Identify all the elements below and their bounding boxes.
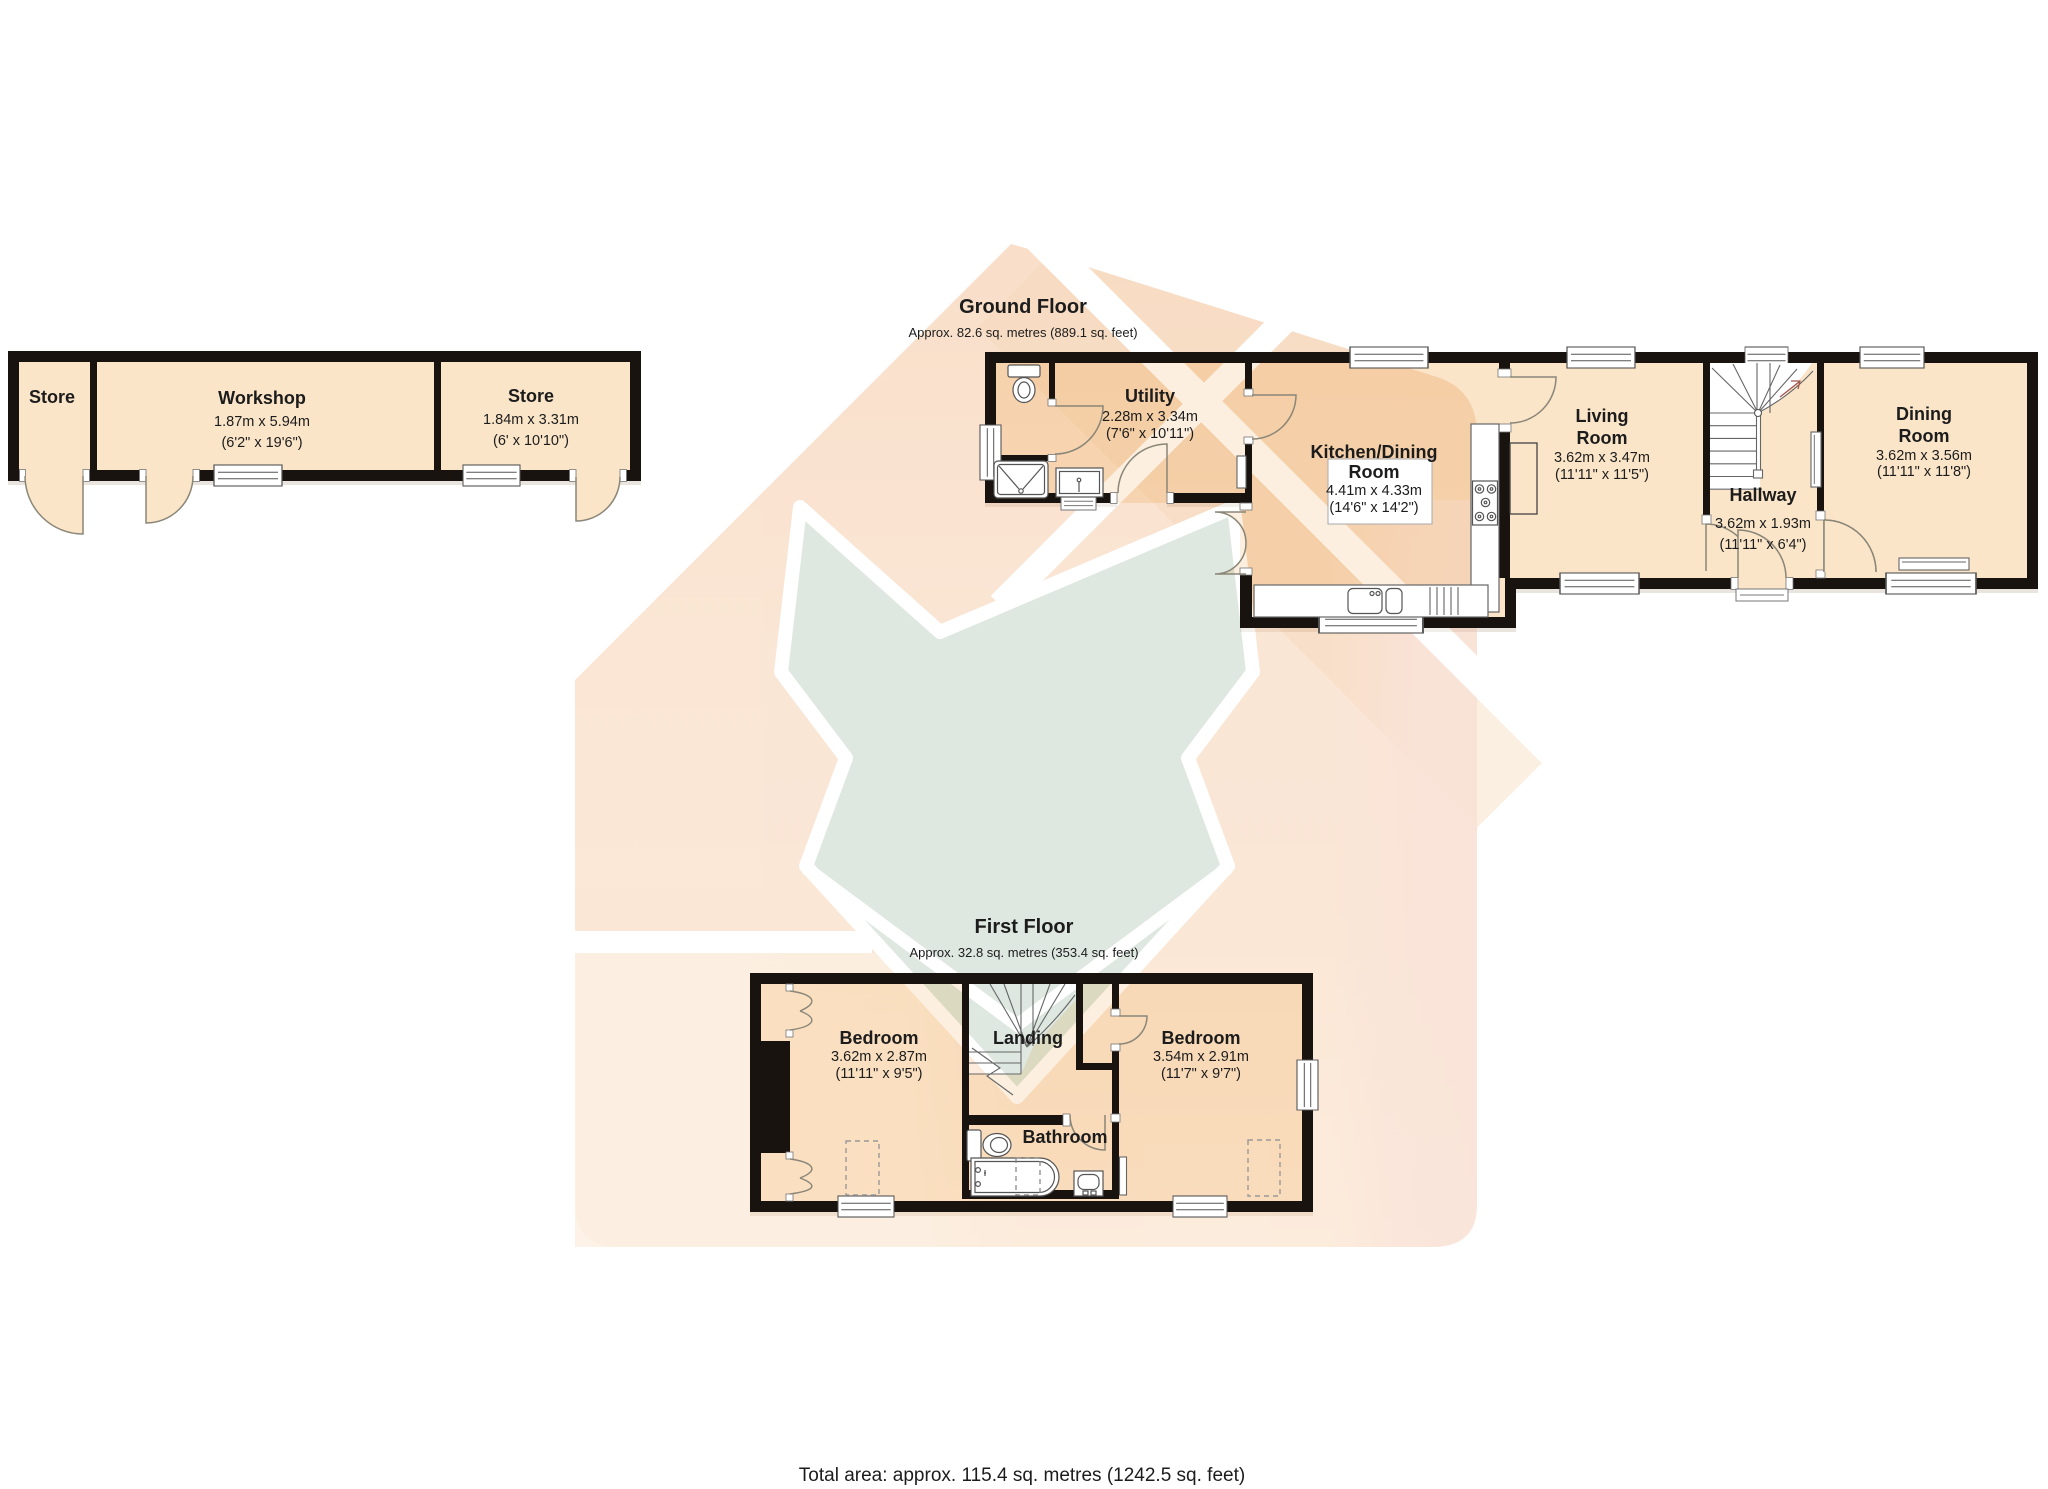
- svg-text:Dining: Dining: [1896, 404, 1952, 424]
- svg-text:3.62m x 1.93m: 3.62m x 1.93m: [1715, 516, 1811, 532]
- svg-text:Room: Room: [1899, 426, 1950, 446]
- svg-text:1.84m x 3.31m: 1.84m x 3.31m: [483, 412, 579, 428]
- svg-text:Utility: Utility: [1125, 386, 1175, 406]
- svg-text:Bedroom: Bedroom: [839, 1028, 918, 1048]
- svg-text:Bathroom: Bathroom: [1023, 1127, 1108, 1147]
- svg-text:3.54m x 2.91m: 3.54m x 2.91m: [1153, 1049, 1249, 1065]
- svg-text:First Floor: First Floor: [975, 916, 1074, 938]
- svg-text:(11'11" x 6'4"): (11'11" x 6'4"): [1719, 537, 1806, 553]
- svg-text:3.62m x 3.56m: 3.62m x 3.56m: [1876, 448, 1972, 464]
- svg-text:Hallway: Hallway: [1729, 485, 1796, 505]
- svg-text:2.28m x 3.34m: 2.28m x 3.34m: [1102, 409, 1198, 425]
- svg-text:(14'6" x 14'2"): (14'6" x 14'2"): [1329, 500, 1418, 516]
- svg-text:(6' x 10'10"): (6' x 10'10"): [493, 433, 569, 449]
- svg-text:Landing: Landing: [993, 1028, 1063, 1048]
- svg-text:1.87m x 5.94m: 1.87m x 5.94m: [214, 414, 310, 430]
- svg-text:Store: Store: [508, 386, 554, 406]
- svg-text:4.41m x 4.33m: 4.41m x 4.33m: [1326, 483, 1422, 499]
- svg-text:Kitchen/Dining: Kitchen/Dining: [1311, 442, 1438, 462]
- svg-text:(6'2" x 19'6"): (6'2" x 19'6"): [221, 435, 302, 451]
- svg-text:Approx. 32.8 sq. metres (353.4: Approx. 32.8 sq. metres (353.4 sq. feet): [909, 945, 1138, 960]
- svg-text:Room: Room: [1349, 462, 1400, 482]
- svg-text:(11'11" x 11'5"): (11'11" x 11'5"): [1555, 467, 1649, 483]
- svg-text:Workshop: Workshop: [218, 388, 306, 408]
- svg-text:(11'7" x 9'7"): (11'7" x 9'7"): [1161, 1066, 1241, 1082]
- svg-text:(11'11" x 9'5"): (11'11" x 9'5"): [835, 1066, 922, 1082]
- svg-text:(11'11" x 11'8"): (11'11" x 11'8"): [1877, 464, 1971, 480]
- svg-text:Bedroom: Bedroom: [1161, 1028, 1240, 1048]
- svg-text:3.62m x 3.47m: 3.62m x 3.47m: [1554, 450, 1650, 466]
- svg-text:Total area: approx. 115.4 sq.: Total area: approx. 115.4 sq. metres (12…: [799, 1465, 1245, 1486]
- svg-text:3.62m x 2.87m: 3.62m x 2.87m: [831, 1049, 927, 1065]
- svg-text:Living: Living: [1576, 406, 1629, 426]
- svg-text:Ground Floor: Ground Floor: [959, 296, 1087, 318]
- svg-text:Room: Room: [1577, 428, 1628, 448]
- svg-text:(7'6" x 10'11"): (7'6" x 10'11"): [1106, 426, 1194, 442]
- svg-text:Approx. 82.6 sq. metres (889.1: Approx. 82.6 sq. metres (889.1 sq. feet): [908, 325, 1137, 340]
- svg-text:Store: Store: [29, 387, 75, 407]
